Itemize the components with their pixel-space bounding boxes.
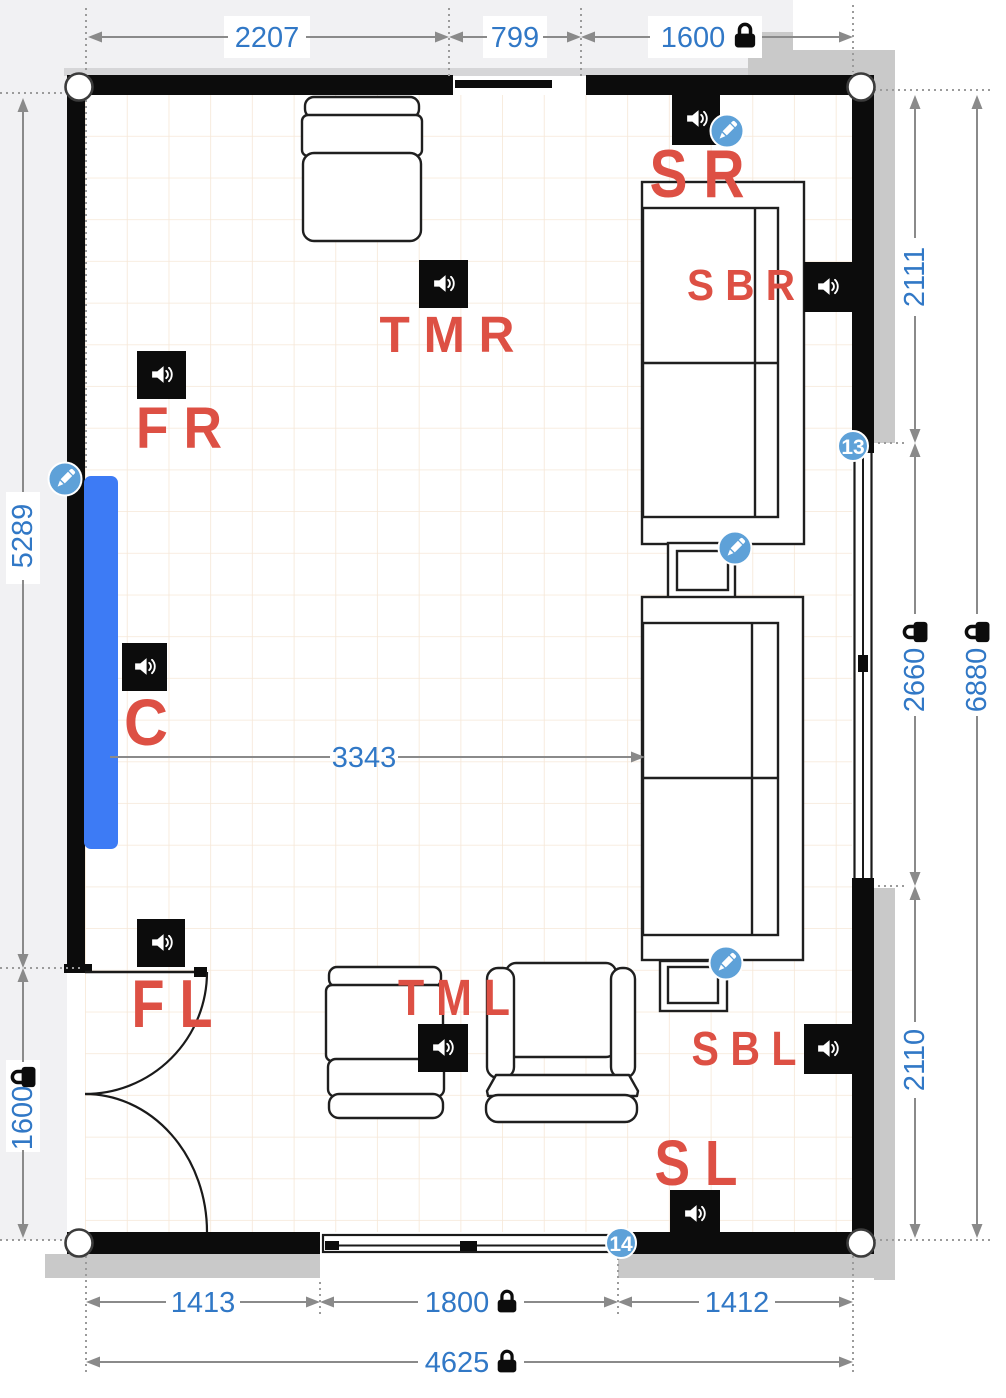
speaker-sbr[interactable] xyxy=(804,262,852,312)
label-sbl: S B L xyxy=(692,1023,797,1076)
window-right[interactable] xyxy=(852,443,874,888)
speaker-sbl[interactable] xyxy=(804,1024,852,1074)
dimension-right-upper[interactable]: 2111 xyxy=(899,247,931,307)
floor-plan-canvas[interactable]: 3343 xyxy=(0,0,1006,1398)
dimension-top-middle[interactable]: 799 xyxy=(491,22,539,54)
dimension-right-middle[interactable]: 2660 xyxy=(899,648,931,713)
sliding-door-top[interactable] xyxy=(455,80,552,88)
dimension-center-distance[interactable]: 3343 xyxy=(332,742,397,774)
wall-left[interactable] xyxy=(67,75,85,970)
corner-handle-bottom-left[interactable] xyxy=(66,1230,93,1257)
edit-table-middle-button[interactable] xyxy=(719,532,752,565)
speaker-fr[interactable] xyxy=(137,351,186,399)
svg-text:13: 13 xyxy=(841,436,864,459)
label-sbr: S B R xyxy=(687,261,795,310)
edit-screen-button[interactable] xyxy=(49,463,82,496)
dimension-bottom-rows: 1413 1800 1412 4625 xyxy=(86,1287,853,1379)
speaker-tml[interactable] xyxy=(418,1024,468,1072)
speaker-tmr[interactable] xyxy=(419,260,468,308)
lock-icon-right-middle xyxy=(904,622,927,642)
wall-bottom-left-segment[interactable] xyxy=(67,1232,320,1254)
band-right-lower xyxy=(874,888,895,1280)
sofa-lower[interactable] xyxy=(642,597,803,960)
label-sl: S L xyxy=(655,1127,738,1199)
window-right-handle xyxy=(858,655,868,672)
badge-right-window[interactable]: 13 xyxy=(838,431,868,461)
dimension-bottom-total[interactable]: 4625 xyxy=(425,1347,490,1379)
label-fr: F R xyxy=(136,396,222,461)
speaker-c[interactable] xyxy=(122,643,167,691)
dimension-top-right[interactable]: 1600 xyxy=(661,22,726,54)
corner-handle-bottom-right[interactable] xyxy=(848,1230,875,1257)
wall-bottom-right-segment[interactable] xyxy=(618,1232,874,1254)
speaker-fl[interactable] xyxy=(137,919,185,967)
label-c: C xyxy=(124,685,168,759)
dimension-bottom-left[interactable]: 1413 xyxy=(171,1287,236,1319)
label-fl: F L xyxy=(132,966,213,1042)
wall-right-upper[interactable] xyxy=(852,75,874,443)
band-right-upper xyxy=(874,50,895,443)
lock-icon-bottom-middle xyxy=(498,1291,517,1312)
label-tml: T M L xyxy=(398,969,510,1026)
dimension-right-total[interactable]: 6880 xyxy=(961,648,993,713)
edit-table-bottom-button[interactable] xyxy=(710,947,743,980)
corner-handle-top-right[interactable] xyxy=(848,74,875,101)
wall-top-right-segment[interactable] xyxy=(586,75,874,95)
dimension-right-columns: 2111 2660 2110 6880 xyxy=(899,95,993,1238)
projector-screen[interactable] xyxy=(84,476,118,849)
corner-handle-top-left[interactable] xyxy=(66,74,93,101)
dimension-bottom-right[interactable]: 1412 xyxy=(705,1287,770,1319)
dimension-bottom-middle[interactable]: 1800 xyxy=(425,1287,490,1319)
label-sr: S R xyxy=(650,136,745,212)
floor-plan-stage: 3343 xyxy=(0,0,1006,1398)
dimension-left-upper[interactable]: 5289 xyxy=(7,504,39,569)
band-top-thin xyxy=(64,68,748,76)
armchair-top[interactable] xyxy=(302,97,422,241)
dimension-top-left[interactable]: 2207 xyxy=(235,22,300,54)
wall-top-left-segment[interactable] xyxy=(67,75,453,95)
window-bottom-handle xyxy=(460,1241,477,1251)
dimension-right-lower[interactable]: 2110 xyxy=(899,1029,931,1091)
window-bottom[interactable] xyxy=(320,1232,618,1254)
lock-icon-bottom-total xyxy=(498,1351,517,1372)
dimension-left-lower[interactable]: 1600 xyxy=(7,1086,39,1151)
wall-right-lower[interactable] xyxy=(852,888,874,1254)
sofa-upper[interactable] xyxy=(642,182,804,544)
lock-icon-right-total xyxy=(966,622,989,642)
svg-text:14: 14 xyxy=(609,1233,633,1256)
label-tmr: T M R xyxy=(380,306,515,363)
badge-bottom-window[interactable]: 14 xyxy=(606,1228,636,1258)
